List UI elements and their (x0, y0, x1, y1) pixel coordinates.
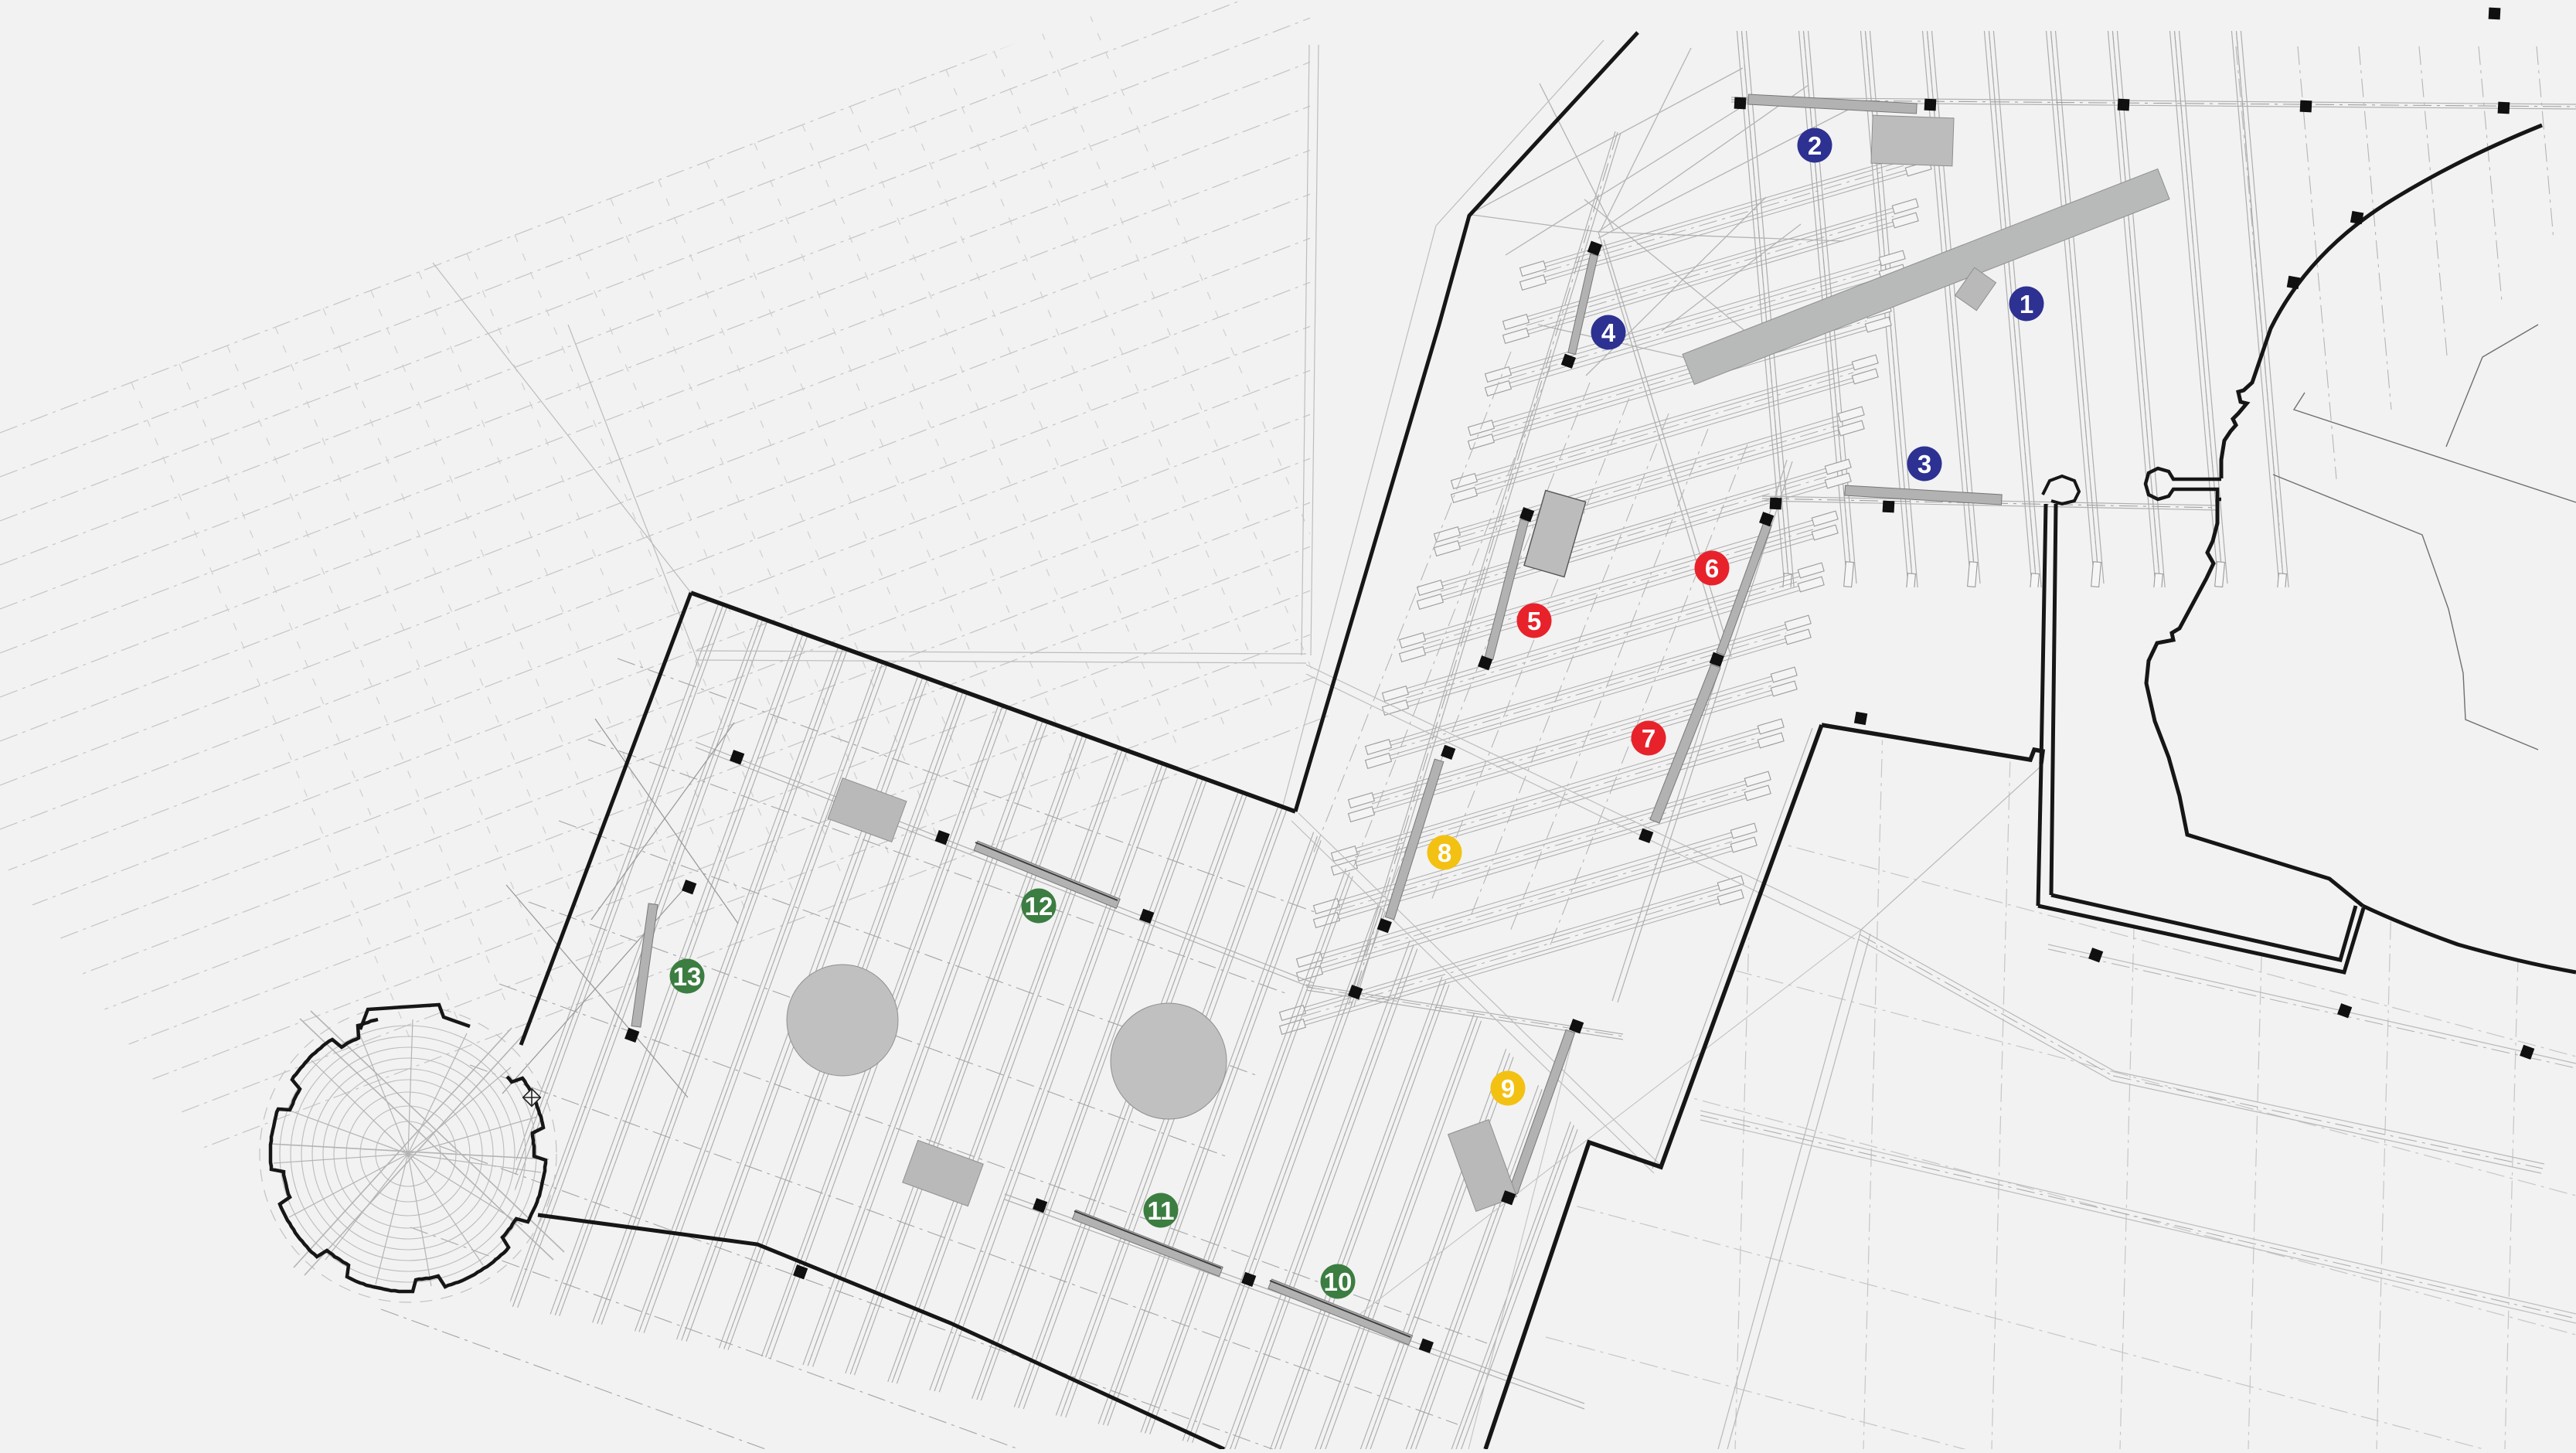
svg-text:1: 1 (2020, 290, 2033, 318)
svg-text:13: 13 (673, 962, 702, 991)
svg-text:10: 10 (1324, 1268, 1353, 1296)
svg-text:11: 11 (1148, 1196, 1175, 1225)
svg-text:8: 8 (1438, 839, 1451, 867)
svg-text:9: 9 (1501, 1074, 1515, 1103)
svg-text:5: 5 (1527, 607, 1541, 635)
svg-text:2: 2 (1808, 131, 1822, 160)
svg-text:7: 7 (1642, 724, 1656, 753)
svg-text:6: 6 (1705, 554, 1719, 583)
svg-text:12: 12 (1025, 892, 1053, 920)
svg-text:4: 4 (1601, 318, 1616, 347)
svg-text:3: 3 (1918, 450, 1931, 478)
